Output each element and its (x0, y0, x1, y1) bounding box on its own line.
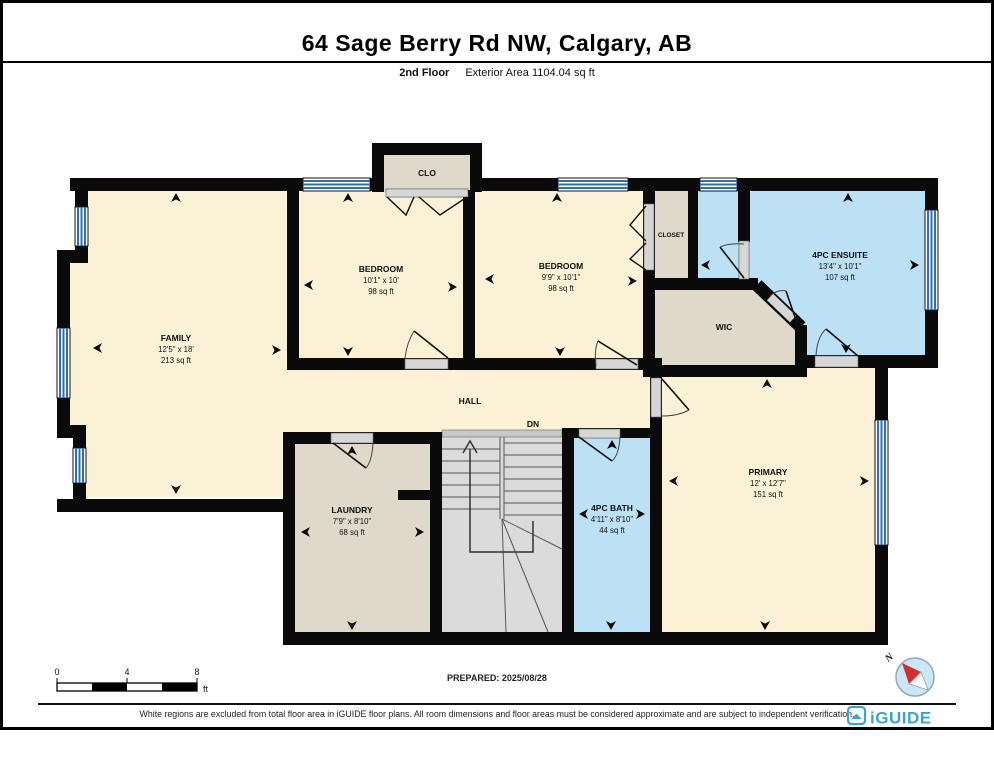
window (73, 448, 86, 483)
window (925, 210, 938, 310)
room-fills (70, 155, 925, 632)
floor-plan-svg: FAMILY 12'5" x 18' 213 sq ft BEDROOM 10'… (0, 0, 994, 768)
prepared-date: PREPARED: 2025/08/28 (447, 673, 547, 683)
footer-disclaimer: White regions are excluded from total fl… (0, 709, 994, 719)
scale-tick-8: 8 (194, 667, 199, 677)
compass-north-label: N (882, 651, 896, 665)
svg-text:FAMILY: FAMILY (161, 333, 192, 343)
window (700, 178, 737, 191)
svg-text:213 sq ft: 213 sq ft (161, 356, 192, 365)
iguide-logo-icon (848, 707, 865, 724)
room-label-closet: CLOSET (658, 232, 684, 239)
wall-segment (372, 143, 384, 192)
svg-text:BEDROOM: BEDROOM (539, 261, 583, 271)
window (875, 420, 888, 545)
scale-bar-segment (92, 683, 127, 691)
room-label-family: FAMILY 12'5" x 18' 213 sq ft (158, 333, 194, 365)
svg-text:44 sq ft: 44 sq ft (599, 526, 625, 535)
wall-segment (463, 190, 475, 370)
svg-text:98 sq ft: 98 sq ft (368, 287, 394, 296)
svg-text:10'1" x 10': 10'1" x 10' (363, 276, 399, 285)
wall-segment (643, 278, 758, 290)
room-primary (662, 368, 875, 632)
wall-segment (430, 432, 442, 645)
scale-bar-segment (162, 683, 197, 691)
wall-segment (688, 178, 698, 290)
scale-bar: 0 4 8 ft (54, 667, 208, 694)
wall-segment (287, 178, 299, 370)
svg-text:LAUNDRY: LAUNDRY (331, 505, 373, 515)
wall-segment (57, 499, 295, 512)
window (57, 328, 70, 398)
svg-text:13'4" x 10'1": 13'4" x 10'1" (819, 262, 862, 271)
threshold-stairs (442, 430, 562, 437)
scale-tick-4: 4 (124, 667, 129, 677)
wall-segment (470, 143, 482, 192)
svg-text:4PC BATH: 4PC BATH (591, 503, 633, 513)
svg-text:7'9" x 8'10": 7'9" x 8'10" (333, 517, 372, 526)
room-label-clo: CLO (418, 168, 436, 178)
wall-segment (738, 178, 750, 242)
window (75, 207, 88, 246)
footer-divider (38, 703, 956, 705)
wall-segment (283, 632, 888, 645)
iguide-brand: iGUIDE (846, 704, 956, 733)
svg-text:107 sq ft: 107 sq ft (825, 273, 856, 282)
room-bedroom1 (299, 190, 463, 358)
svg-text:BEDROOM: BEDROOM (359, 264, 403, 274)
iguide-logo: iGUIDE (846, 704, 956, 728)
wall-segment (398, 490, 442, 500)
svg-text:98 sq ft: 98 sq ft (548, 284, 574, 293)
svg-text:68 sq ft: 68 sq ft (339, 528, 365, 537)
svg-text:PRIMARY: PRIMARY (749, 467, 788, 477)
room-label-dn: DN (527, 419, 539, 429)
room-stairs (442, 437, 562, 632)
svg-text:12'5" x 18': 12'5" x 18' (158, 345, 194, 354)
wall-segment (650, 437, 662, 632)
svg-text:4PC ENSUITE: 4PC ENSUITE (812, 250, 868, 260)
iguide-logo-text: iGUIDE (870, 709, 932, 728)
scale-unit: ft (203, 684, 209, 694)
svg-text:4'11" x 8'10": 4'11" x 8'10" (591, 515, 633, 524)
room-label-hall: HALL (459, 396, 482, 406)
wall-segment (643, 365, 807, 377)
wall-segment (372, 143, 482, 155)
scale-tick-0: 0 (54, 667, 59, 677)
window (303, 178, 370, 191)
wall-segment (562, 428, 574, 632)
svg-text:12' x 12'7": 12' x 12'7" (750, 479, 786, 488)
room-laundry (295, 444, 430, 632)
compass: N (882, 651, 934, 696)
floor-plan-page: 64 Sage Berry Rd NW, Calgary, AB 2nd Flo… (0, 0, 994, 768)
window (558, 178, 628, 191)
room-label-primary: PRIMARY 12' x 12'7" 151 sq ft (749, 467, 788, 499)
svg-text:9'9" x 10'1": 9'9" x 10'1" (542, 273, 581, 282)
room-label-wic: WIC (716, 322, 733, 332)
wall-segment (283, 432, 295, 645)
svg-text:151 sq ft: 151 sq ft (753, 490, 784, 499)
